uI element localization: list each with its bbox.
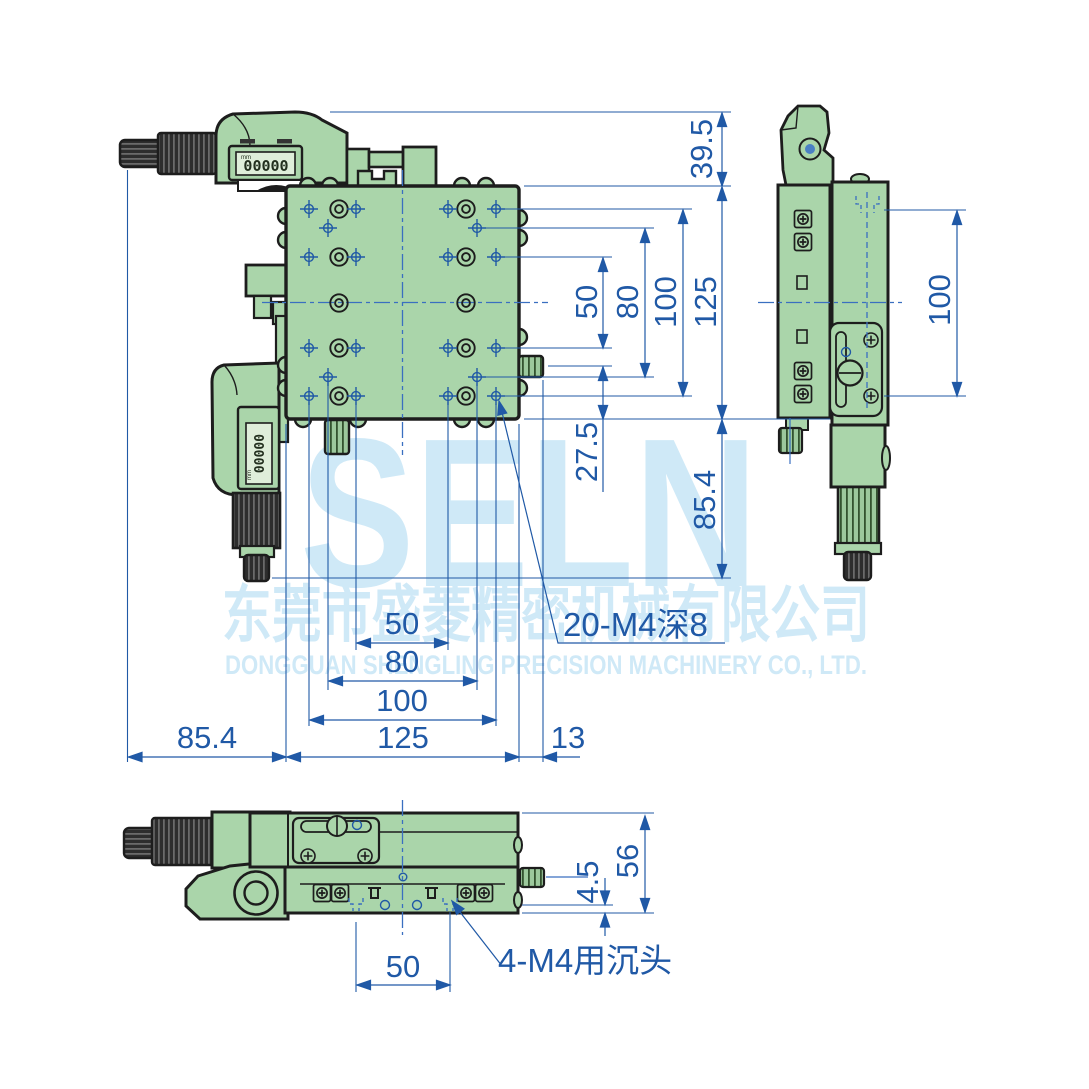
dim-front-50: 50 — [386, 949, 420, 984]
y-mic-stem — [254, 296, 271, 318]
y-micrometer: 00000 mm — [212, 265, 288, 581]
front-clamp-knob — [520, 868, 544, 887]
x-mic-marking — [277, 139, 292, 144]
dim-right-100: 100 — [648, 276, 683, 328]
dim-front-4-5: 4.5 — [570, 860, 605, 903]
dim-bottom-125: 125 — [377, 720, 429, 755]
technical-drawing-page: SELN 东莞市盛菱精密机械有限公司 DONGGUAN SHENGLING PR… — [0, 0, 1089, 1089]
y-mic-display-unit: mm — [247, 470, 253, 480]
dim-right-80: 80 — [610, 285, 645, 319]
x-micrometer: 00000 mm — [120, 112, 436, 191]
dim-bottom-50: 50 — [385, 606, 419, 641]
side-body-bump — [882, 446, 890, 470]
side-mic-body — [831, 425, 885, 487]
dim-39-5: 39.5 — [684, 119, 719, 179]
side-clamp-knob — [519, 356, 543, 377]
front-cover-screw — [358, 849, 372, 863]
watermark-company-en: DONGGUAN SHENGLING PRECISION MACHINERY C… — [225, 650, 867, 680]
dim-bottom-80: 80 — [385, 644, 419, 679]
y-mic-display-digits: 00000 — [253, 434, 268, 473]
x-mic-mount-block — [403, 147, 436, 186]
y-mic-thimble — [233, 493, 280, 548]
front-top-plate — [250, 813, 518, 867]
x-mic-spindle — [369, 152, 404, 167]
x-mic-display-unit: mm — [241, 155, 251, 161]
dim-27-5: 27.5 — [569, 422, 604, 482]
dim-bottom-13: 13 — [551, 720, 585, 755]
xy-stage-drawing: SELN 东莞市盛菱精密机械有限公司 DONGGUAN SHENGLING PR… — [0, 0, 1089, 1089]
dim-right-50: 50 — [569, 285, 604, 319]
dim-bottom-85-4: 85.4 — [177, 720, 237, 755]
y-mic-tip — [244, 555, 269, 581]
side-view — [758, 106, 902, 580]
dim-right-85-4: 85.4 — [687, 470, 722, 530]
label-countersunk-holes: 4-M4用沉头 — [498, 942, 672, 979]
front-edge-bump — [514, 837, 522, 853]
label-tapped-holes: 20-M4深8 — [563, 606, 708, 643]
front-edge-bump — [514, 892, 522, 908]
front-cover-screw — [301, 849, 315, 863]
front-view — [124, 800, 588, 935]
watermark: SELN 东莞市盛菱精密机械有限公司 DONGGUAN SHENGLING PR… — [222, 394, 870, 680]
x-mic-thimble — [158, 133, 216, 174]
side-screw-top — [864, 333, 878, 347]
front-mic-thimble — [152, 818, 214, 865]
dim-right-125: 125 — [688, 276, 723, 328]
side-screw-bottom — [864, 389, 878, 403]
x-mic-marking — [240, 139, 255, 144]
front-boss-inner — [245, 882, 268, 905]
side-bracket-pin — [805, 144, 815, 154]
dim-side-100: 100 — [922, 274, 957, 326]
bottom-clamp-knob — [325, 420, 349, 454]
dim-bottom-100: 100 — [376, 683, 428, 718]
side-tip — [844, 552, 871, 580]
dim-front-56: 56 — [610, 844, 645, 878]
side-thimble — [838, 487, 879, 545]
y-mic-arm — [246, 265, 288, 296]
x-mic-tip — [120, 140, 162, 167]
